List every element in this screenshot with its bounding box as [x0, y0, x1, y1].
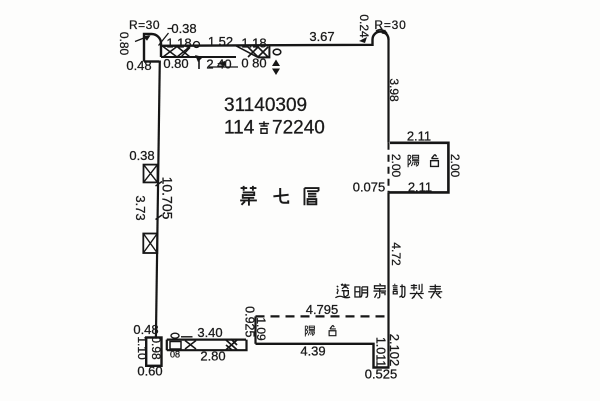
svg-text:0.48: 0.48: [126, 58, 151, 73]
svg-text:3.98: 3.98: [387, 78, 401, 102]
svg-text:0.525: 0.525: [365, 367, 398, 382]
svg-text:0.48: 0.48: [133, 322, 158, 337]
svg-text:72240: 72240: [272, 118, 325, 139]
svg-text:3.67: 3.67: [309, 29, 334, 44]
svg-text:2.00: 2.00: [389, 154, 403, 178]
svg-text:2.102: 2.102: [387, 334, 402, 367]
svg-text:4.72: 4.72: [389, 242, 403, 266]
svg-text:08: 08: [170, 350, 180, 360]
svg-text:2.11: 2.11: [408, 180, 432, 195]
svg-text:0 80: 0 80: [241, 56, 266, 71]
svg-text:1.52: 1.52: [208, 34, 233, 49]
svg-text:R=30: R=30: [374, 18, 406, 32]
svg-text:R=30: R=30: [129, 18, 160, 32]
svg-text:0.80: 0.80: [163, 56, 188, 71]
svg-text:1.011: 1.011: [374, 337, 388, 367]
svg-text:1.09: 1.09: [254, 317, 268, 341]
svg-text:0.24: 0.24: [357, 14, 371, 38]
svg-text:1.18: 1.18: [166, 36, 191, 51]
svg-text:0.80: 0.80: [117, 32, 131, 56]
svg-text:2.00: 2.00: [448, 154, 462, 178]
svg-text:1.18: 1.18: [241, 36, 266, 51]
svg-text:31140309: 31140309: [224, 95, 307, 116]
svg-text:4.39: 4.39: [300, 344, 325, 359]
svg-text:0.38: 0.38: [129, 148, 154, 163]
svg-text:2.11: 2.11: [407, 129, 431, 144]
svg-text:1.10: 1.10: [135, 336, 149, 360]
svg-text:10.705: 10.705: [160, 177, 176, 220]
svg-text:0.38: 0.38: [171, 21, 196, 36]
svg-text:0.60: 0.60: [137, 364, 162, 379]
svg-text:114: 114: [224, 118, 255, 139]
svg-text:0.98: 0.98: [149, 336, 163, 360]
svg-text:2.80: 2.80: [200, 349, 225, 364]
svg-text:3.40: 3.40: [197, 325, 222, 340]
svg-text:0.075: 0.075: [353, 180, 386, 195]
svg-text:4.795: 4.795: [306, 302, 339, 317]
svg-text:2 40: 2 40: [206, 57, 231, 72]
svg-text:3.73: 3.73: [133, 195, 148, 220]
